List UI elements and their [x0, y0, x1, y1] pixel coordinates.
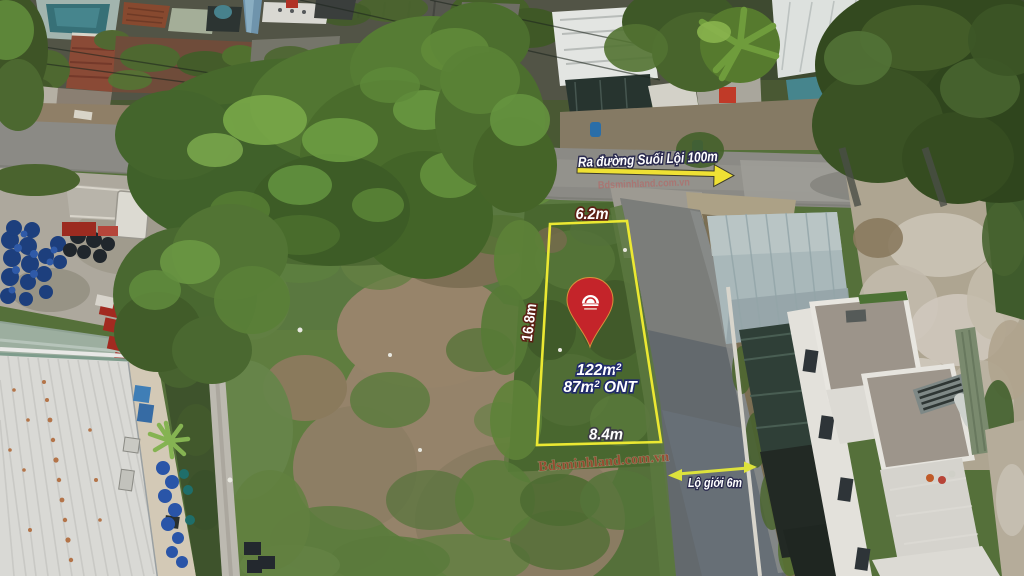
svg-text:87m2 ONT: 87m2 ONT — [563, 379, 638, 396]
svg-text:Lộ giới 6m: Lộ giới 6m — [688, 476, 742, 490]
svg-text:122m2: 122m2 — [577, 362, 623, 379]
svg-text:8.4m: 8.4m — [589, 427, 623, 444]
svg-text:6.2m: 6.2m — [576, 206, 609, 223]
